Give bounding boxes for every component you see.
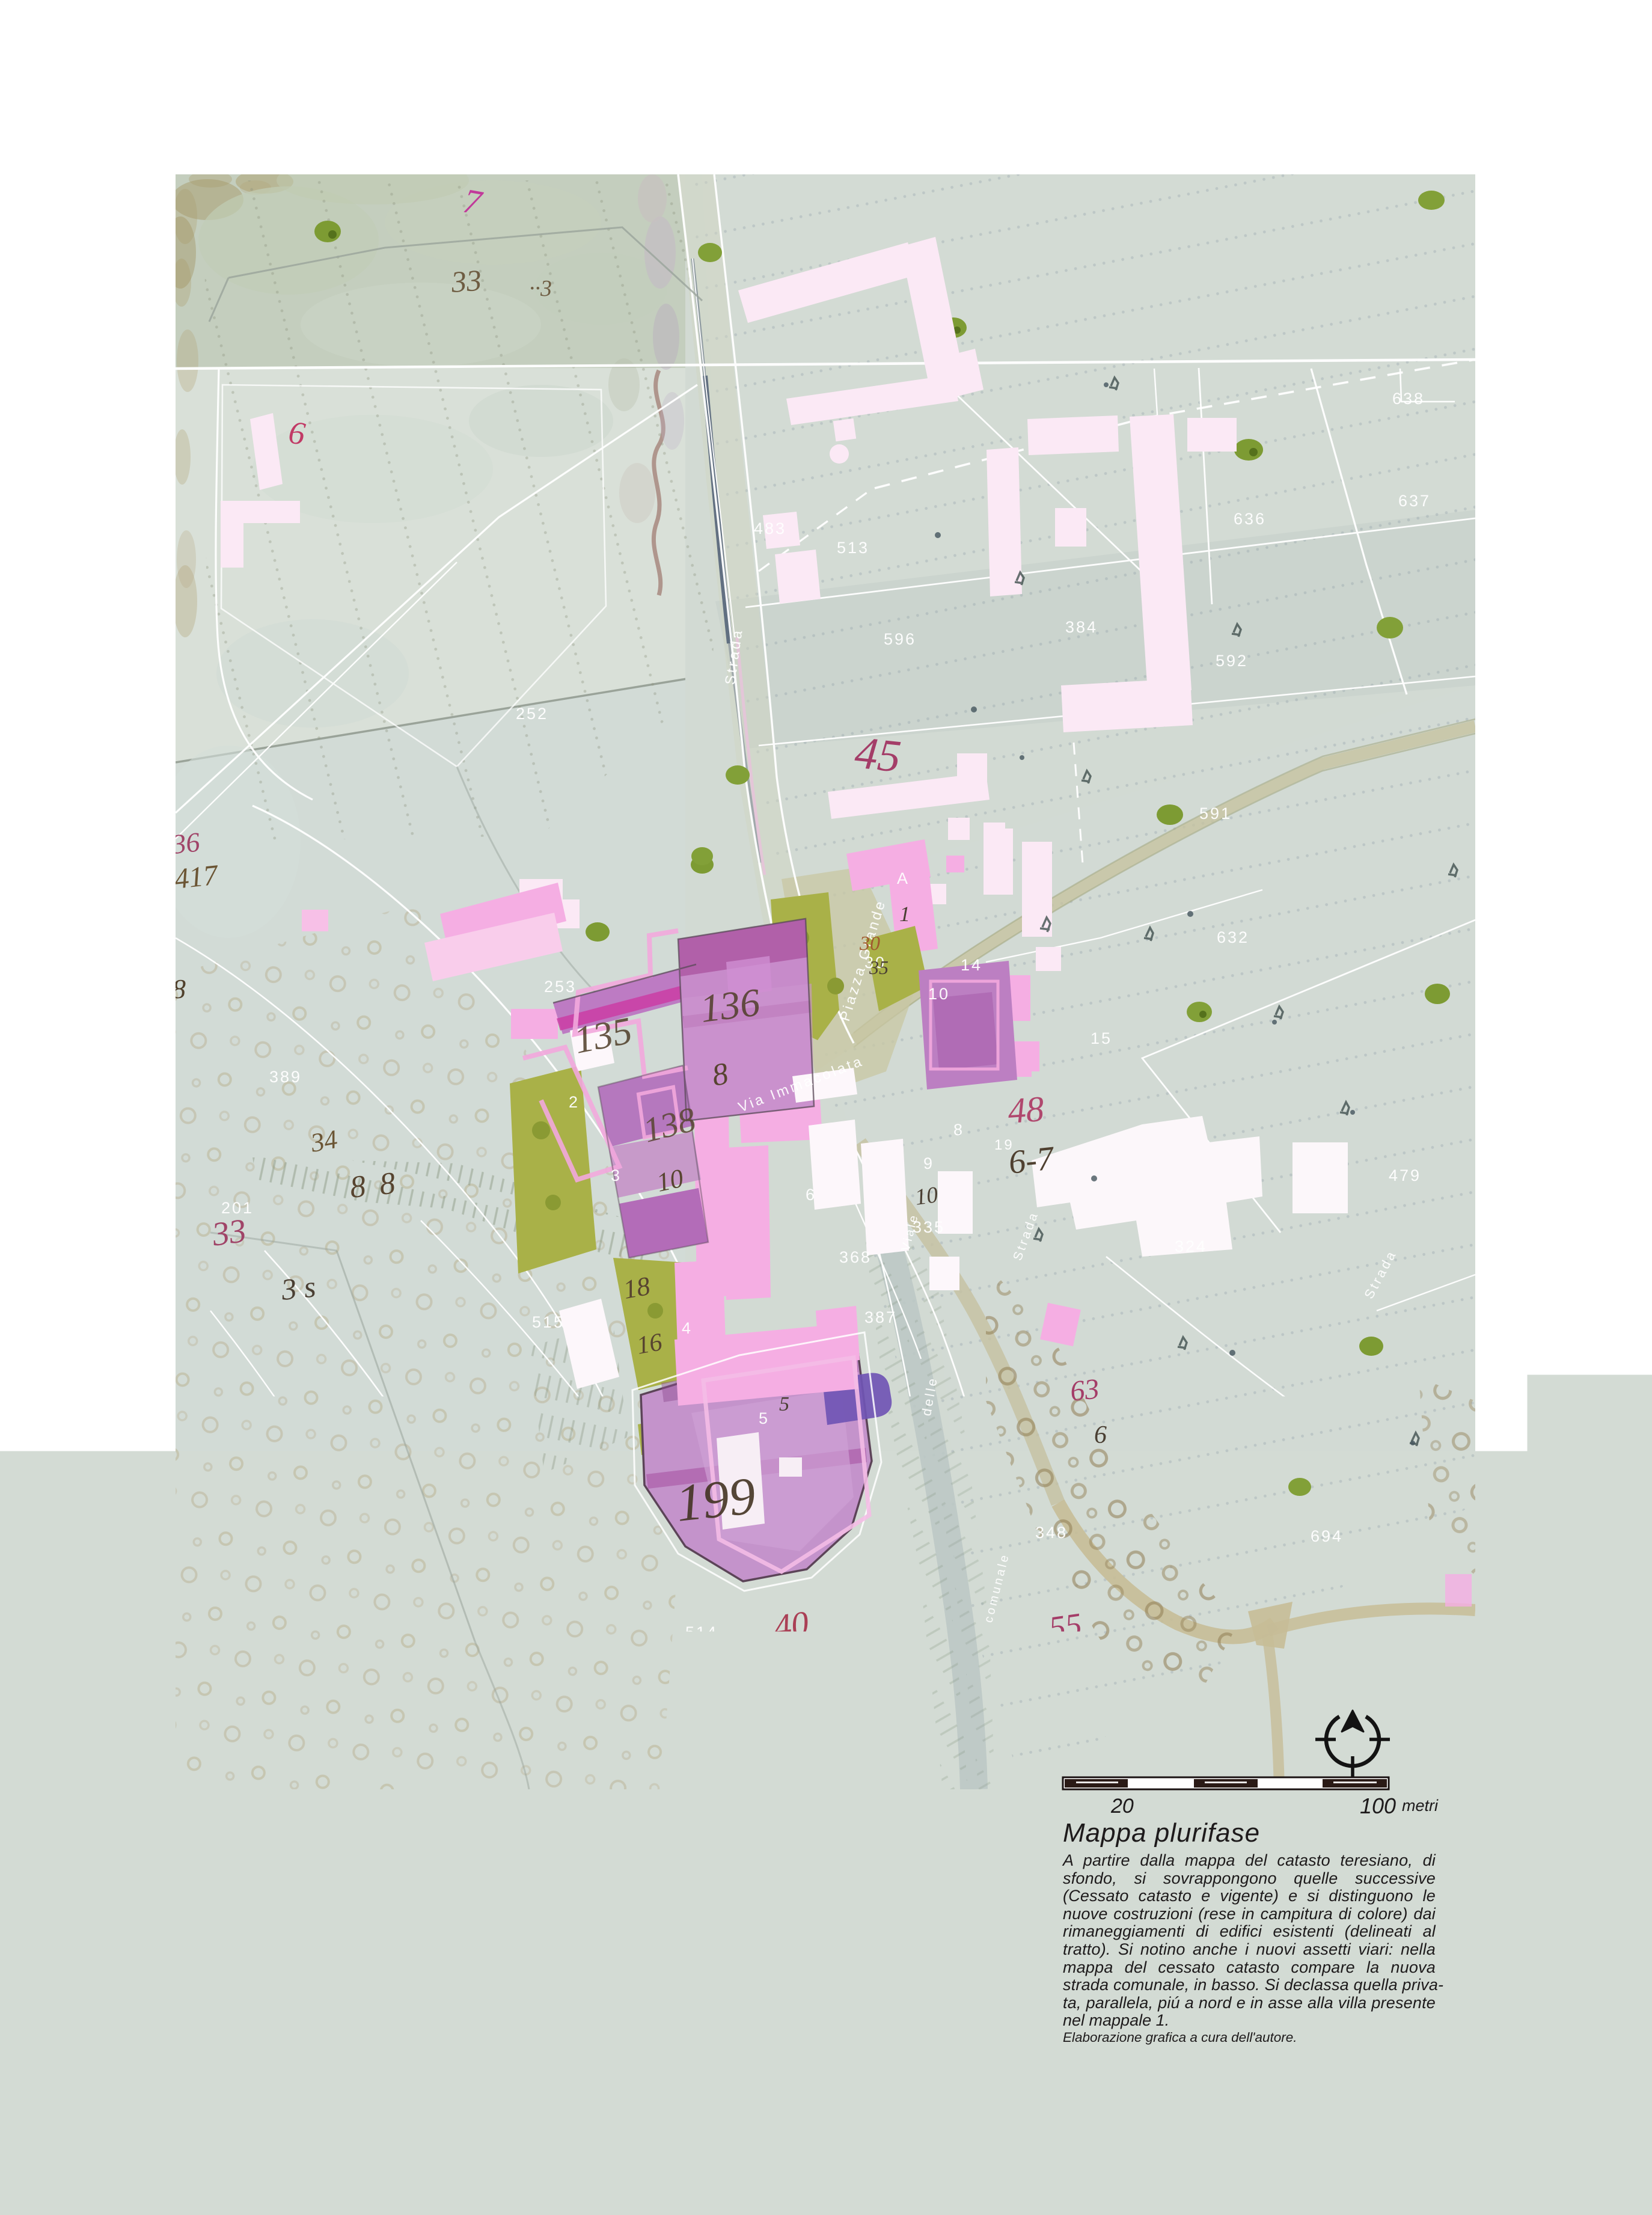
svg-text:10: 10: [913, 1182, 939, 1210]
svg-text:592: 592: [1216, 652, 1248, 670]
svg-text:4: 4: [682, 1319, 693, 1337]
svg-text:637: 637: [1398, 492, 1431, 510]
svg-text:55: 55: [1047, 1606, 1084, 1646]
svg-text:417: 417: [173, 859, 221, 895]
svg-text:33: 33: [450, 263, 483, 299]
svg-text:596: 596: [884, 630, 916, 648]
svg-text:632: 632: [1217, 928, 1249, 946]
svg-text:253: 253: [544, 978, 577, 996]
svg-text:8: 8: [172, 973, 186, 1004]
svg-text:3: 3: [611, 1166, 622, 1184]
svg-text:324: 324: [1175, 1237, 1207, 1255]
svg-text:694: 694: [1311, 1527, 1343, 1545]
svg-text:514: 514: [685, 1623, 718, 1641]
svg-text:10: 10: [928, 985, 950, 1003]
svg-text:483: 483: [754, 519, 786, 538]
svg-text:6: 6: [806, 1186, 816, 1204]
svg-text:··3: ··3: [529, 276, 552, 301]
svg-text:1: 1: [899, 902, 910, 926]
svg-text:136: 136: [698, 980, 762, 1031]
svg-text:515: 515: [532, 1313, 564, 1331]
svg-text:100: 100: [1360, 1794, 1396, 1818]
svg-text:257: 257: [792, 1661, 842, 1698]
svg-text:32: 32: [482, 1723, 518, 1762]
svg-text:63: 63: [1069, 1373, 1101, 1408]
svg-text:252: 252: [516, 705, 548, 723]
svg-text:348: 348: [1035, 1524, 1068, 1542]
svg-text:6-7: 6-7: [1007, 1139, 1057, 1181]
svg-text:368: 368: [839, 1248, 872, 1266]
svg-text:14: 14: [961, 956, 982, 974]
svg-text:6: 6: [1094, 1421, 1107, 1449]
svg-text:48: 48: [1006, 1089, 1045, 1131]
svg-text:5: 5: [779, 1393, 789, 1415]
svg-text:15: 15: [1091, 1029, 1112, 1047]
svg-text:384: 384: [1065, 618, 1098, 636]
svg-text:30: 30: [859, 933, 880, 955]
svg-text:479: 479: [1389, 1166, 1421, 1184]
svg-text:636: 636: [1234, 510, 1266, 528]
svg-text:16: 16: [635, 1328, 664, 1360]
svg-text:45: 45: [852, 727, 903, 782]
svg-text:35: 35: [869, 957, 889, 978]
svg-text:s 13 0: s 13 0: [1044, 1659, 1110, 1690]
svg-text:5: 5: [759, 1409, 769, 1427]
svg-text:513: 513: [837, 539, 869, 557]
svg-text:A: A: [897, 869, 910, 887]
svg-text:36: 36: [170, 826, 201, 860]
svg-text:18: 18: [621, 1271, 652, 1305]
svg-text:2: 2: [569, 1093, 580, 1111]
svg-text:387: 387: [864, 1308, 897, 1326]
svg-text:20: 20: [1110, 1795, 1134, 1818]
svg-text:591: 591: [1199, 804, 1232, 823]
svg-text:8: 8: [953, 1121, 964, 1139]
svg-text:40: 40: [771, 1603, 811, 1646]
svg-text:638: 638: [1392, 390, 1425, 408]
svg-text:3 s: 3 s: [279, 1269, 317, 1307]
svg-text:9: 9: [923, 1154, 934, 1172]
svg-text:34: 34: [308, 1124, 340, 1158]
svg-text:199: 199: [673, 1467, 758, 1533]
svg-text:metri: metri: [1402, 1797, 1439, 1815]
svg-text:8 8: 8 8: [348, 1166, 397, 1205]
svg-text:389: 389: [269, 1068, 302, 1086]
svg-text:33: 33: [209, 1212, 248, 1254]
